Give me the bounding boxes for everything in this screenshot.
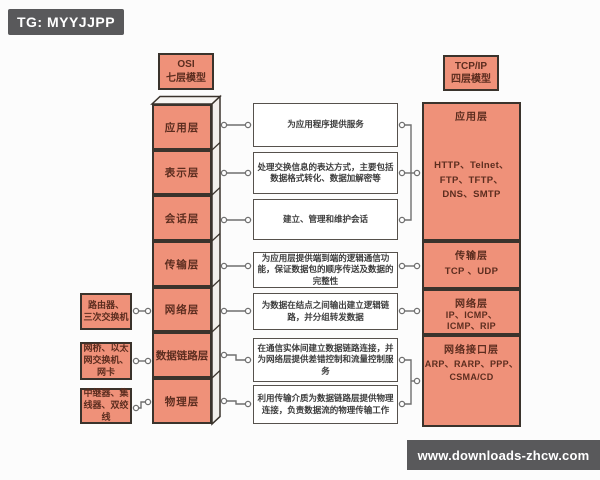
osi-layer-transport: 传输层 bbox=[152, 241, 212, 287]
tcpip-layer-application: 应用层 HTTP、Telnet、 FTP、TFTP、 DNS、SMTP bbox=[422, 102, 521, 241]
device-box-router: 路由器、 三次交换机 bbox=[80, 293, 132, 330]
tcpip-layer-network-interface-label: 网络接口层 bbox=[444, 341, 499, 356]
tcpip-layer-transport-label: 传输层 bbox=[455, 247, 488, 262]
device-box-repeater: 中继器、集 线器、双绞 线 bbox=[80, 388, 132, 424]
description-transport: 为应用层提供端到端的逻辑通信功能，保证数据包的顺序传送及数据的完整性 bbox=[253, 252, 398, 288]
watermark-bottom-right: www.downloads-zhcw.com bbox=[407, 440, 600, 470]
watermark-top-left: TG: MYYJJPP bbox=[8, 9, 124, 35]
tcpip-layer-transport-protocols: TCP 、UDP bbox=[445, 265, 498, 280]
osi-tcpip-diagram: TG: MYYJJPP www.downloads-zhcw.com bbox=[0, 0, 600, 480]
description-datalink: 在通信实体间建立数据链路连接，并为网络层提供差错控制和流量控制服务 bbox=[253, 338, 398, 382]
description-session: 建立、管理和维护会话 bbox=[253, 199, 398, 240]
tcpip-layer-network-interface-protocols: ARP、RARP、PPP、 CSMA/CD bbox=[425, 358, 518, 383]
osi-layer-application: 应用层 bbox=[152, 104, 212, 150]
description-network: 为数据在结点之间输出建立逻辑链路，并分组转发数据 bbox=[253, 293, 398, 330]
tcpip-layer-network-label: 网络层 bbox=[455, 295, 488, 310]
device-box-bridge: 网桥、以太 网交换机、 网卡 bbox=[80, 342, 132, 380]
tcpip-column-header: TCP/IP 四层模型 bbox=[443, 55, 499, 91]
osi-layer-network: 网络层 bbox=[152, 287, 212, 332]
description-physical: 利用传输介质为数据链路层提供物理连接，负责数据流的物理传输工作 bbox=[253, 385, 398, 424]
osi-column-header: OSI 七层模型 bbox=[158, 53, 214, 90]
tcpip-layer-network-interface: 网络接口层 ARP、RARP、PPP、 CSMA/CD bbox=[422, 335, 521, 427]
osi-layer-physical: 物理层 bbox=[152, 378, 212, 424]
osi-layer-datalink: 数据链路层 bbox=[152, 332, 212, 378]
tcpip-layer-application-label: 应用层 bbox=[455, 108, 488, 123]
description-presentation: 处理交换信息的表达方式，主要包括数据格式转化、数据加解密等 bbox=[253, 152, 398, 194]
tcpip-layer-application-protocols: HTTP、Telnet、 FTP、TFTP、 DNS、SMTP bbox=[434, 159, 509, 203]
tcpip-layer-transport: 传输层 TCP 、UDP bbox=[422, 241, 521, 289]
description-application: 为应用程序提供服务 bbox=[253, 103, 398, 147]
osi-layer-presentation: 表示层 bbox=[152, 150, 212, 195]
tcpip-layer-network-protocols: IP、ICMP、 ICMP、RIP bbox=[446, 310, 497, 333]
tcpip-layer-network: 网络层 IP、ICMP、 ICMP、RIP bbox=[422, 289, 521, 335]
osi-layer-session: 会话层 bbox=[152, 195, 212, 241]
